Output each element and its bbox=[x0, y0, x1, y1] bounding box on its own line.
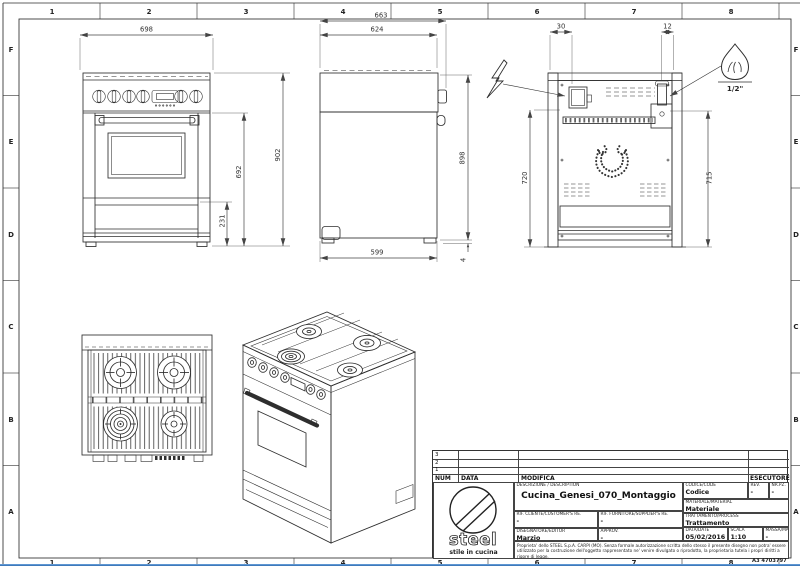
rev-value: - bbox=[749, 489, 768, 496]
revision-row-3: 3 bbox=[435, 453, 439, 459]
border-row-label: C bbox=[8, 323, 13, 331]
border-col-label: 6 bbox=[535, 8, 540, 16]
border-row-label: D bbox=[8, 231, 14, 239]
drawing-sheet: 1 2 3 4 5 6 7 8 1 2 3 4 5 6 7 8 F E D C … bbox=[0, 0, 800, 566]
dim-side-foot: 4 bbox=[460, 258, 468, 262]
border-row-label: A bbox=[793, 508, 799, 516]
border-col-label: 3 bbox=[244, 8, 249, 16]
codice-cell: CODICE/CODE Codice bbox=[683, 482, 748, 499]
revision-header-esecutore: ESECUTORE bbox=[750, 476, 790, 482]
electrical-connection-box bbox=[569, 87, 592, 108]
description-label: DESCRIZIONE / DESCRIPTION bbox=[515, 483, 682, 489]
dim-side-height-right: 898 bbox=[459, 152, 467, 165]
border-row-label: D bbox=[793, 231, 799, 239]
data-value: 05/02/2016 bbox=[684, 534, 727, 541]
border-row-label: E bbox=[9, 138, 14, 146]
massa-value: - bbox=[764, 534, 788, 541]
revision-header-data: DATA bbox=[461, 476, 478, 482]
dim-rear-height-right: 715 bbox=[706, 172, 714, 185]
disegnatore-cell: DISEGNATORE/EDITOR Marzio bbox=[514, 528, 598, 541]
brand-name: steel bbox=[449, 530, 497, 549]
lightning-icon bbox=[487, 60, 565, 98]
border-col-label: 4 bbox=[341, 8, 346, 16]
scala-value: 1:10 bbox=[729, 534, 762, 541]
isometric-view bbox=[243, 312, 415, 543]
border-col-label: 5 bbox=[438, 8, 443, 16]
materiale-cell: MATERIALE/MATERIAL Materiale bbox=[683, 499, 789, 513]
rif-fornitore-cell: RIF. FORNITORE/SUPPLIER'S RE. - bbox=[598, 511, 683, 528]
dim-rear-offset-left: 30 bbox=[557, 23, 566, 31]
rev-cell: REV. - bbox=[748, 482, 769, 499]
border-row-label: B bbox=[793, 416, 798, 424]
front-knobs bbox=[93, 90, 203, 106]
border-col-label: 2 bbox=[147, 8, 152, 16]
dim-front-door-height: 692 bbox=[235, 166, 243, 179]
steel-logo-icon bbox=[450, 487, 496, 533]
border-col-label: 7 bbox=[632, 8, 637, 16]
materiale-value: Materiale bbox=[684, 506, 788, 513]
iso-burners bbox=[278, 325, 381, 378]
description-cell: DESCRIZIONE / DESCRIPTION Cucina_Genesi_… bbox=[514, 482, 683, 511]
border-row-label: A bbox=[8, 508, 14, 516]
burner-top-left bbox=[105, 357, 137, 389]
dim-rear-offset-right: 12 bbox=[663, 23, 672, 31]
border-row-label: B bbox=[8, 416, 13, 424]
steel-logo: steel stile in cucina bbox=[433, 482, 514, 559]
scala-cell: SCALA 1:10 bbox=[728, 527, 763, 541]
revision-row-2: 2 bbox=[435, 461, 439, 467]
revision-header-modifica: MODIFICA bbox=[521, 476, 555, 482]
nrpz-cell: NR.PZ. - bbox=[769, 482, 789, 499]
trattamento-cell: TRATTAMENTO/PROCESS Trattamento bbox=[683, 513, 789, 527]
border-col-label: 8 bbox=[729, 8, 734, 16]
data-cell: DATA/DATE 05/02/2016 bbox=[683, 527, 728, 541]
burner-bottom-left-wok bbox=[104, 407, 138, 441]
rif-cliente-value: - bbox=[515, 518, 597, 525]
rear-view: 30 12 720 715 bbox=[487, 23, 752, 248]
burner-top-right bbox=[158, 356, 191, 389]
drawing-title: Cucina_Genesi_070_Montaggio bbox=[515, 491, 682, 501]
front-view: 698 692 231 902 bbox=[80, 26, 290, 247]
dim-front-width: 698 bbox=[140, 26, 153, 34]
iso-window bbox=[258, 411, 306, 467]
iso-badge bbox=[396, 485, 413, 504]
side-view: 663 624 898 599 4 bbox=[320, 12, 472, 263]
top-view-knob-tabs bbox=[93, 455, 203, 462]
dim-side-depth-overall: 663 bbox=[375, 12, 388, 20]
gas-size-label: 1/2" bbox=[727, 84, 744, 93]
rif-fornitore-value: - bbox=[599, 518, 682, 525]
dim-side-depth-base: 599 bbox=[371, 249, 384, 257]
dim-side-depth-top: 624 bbox=[371, 26, 384, 34]
border-row-label: F bbox=[9, 46, 14, 54]
rif-cliente-cell: RIF. CLIENTE/CUSTOMER'S RE. - bbox=[514, 511, 598, 528]
dim-front-plinth: 231 bbox=[219, 215, 227, 228]
front-display bbox=[152, 91, 178, 103]
approv-cell: APPROV. - bbox=[598, 528, 683, 541]
dim-overall-height: 902 bbox=[274, 149, 282, 162]
legal-text: Proprieta' dello STEEL S.p.A. CARPI (MO)… bbox=[515, 542, 788, 559]
top-view bbox=[82, 335, 212, 462]
border-row-label: C bbox=[793, 323, 798, 331]
massa-cell: MASSA/MASS kg - bbox=[763, 527, 789, 541]
border-col-label: 1 bbox=[50, 8, 55, 16]
border-row-label: E bbox=[794, 138, 799, 146]
codice-value: Codice bbox=[684, 489, 747, 496]
trattamento-value: Trattamento bbox=[684, 520, 788, 527]
rear-perforation-motif bbox=[596, 146, 628, 177]
iso-handle bbox=[247, 393, 317, 426]
revision-row-1: 1 bbox=[435, 468, 439, 474]
title-block: 3 2 1 NUM DATA MODIFICA ESECUTORE steel … bbox=[432, 450, 788, 558]
revision-header-num: NUM bbox=[435, 476, 451, 482]
legal-cell: Proprieta' dello STEEL S.p.A. CARPI (MO)… bbox=[514, 541, 789, 559]
brand-tagline: stile in cucina bbox=[434, 549, 513, 556]
border-row-label: F bbox=[794, 46, 799, 54]
dim-rear-height-left: 720 bbox=[521, 172, 529, 185]
nrpz-value: - bbox=[770, 489, 788, 496]
burner-bottom-right bbox=[161, 411, 187, 437]
